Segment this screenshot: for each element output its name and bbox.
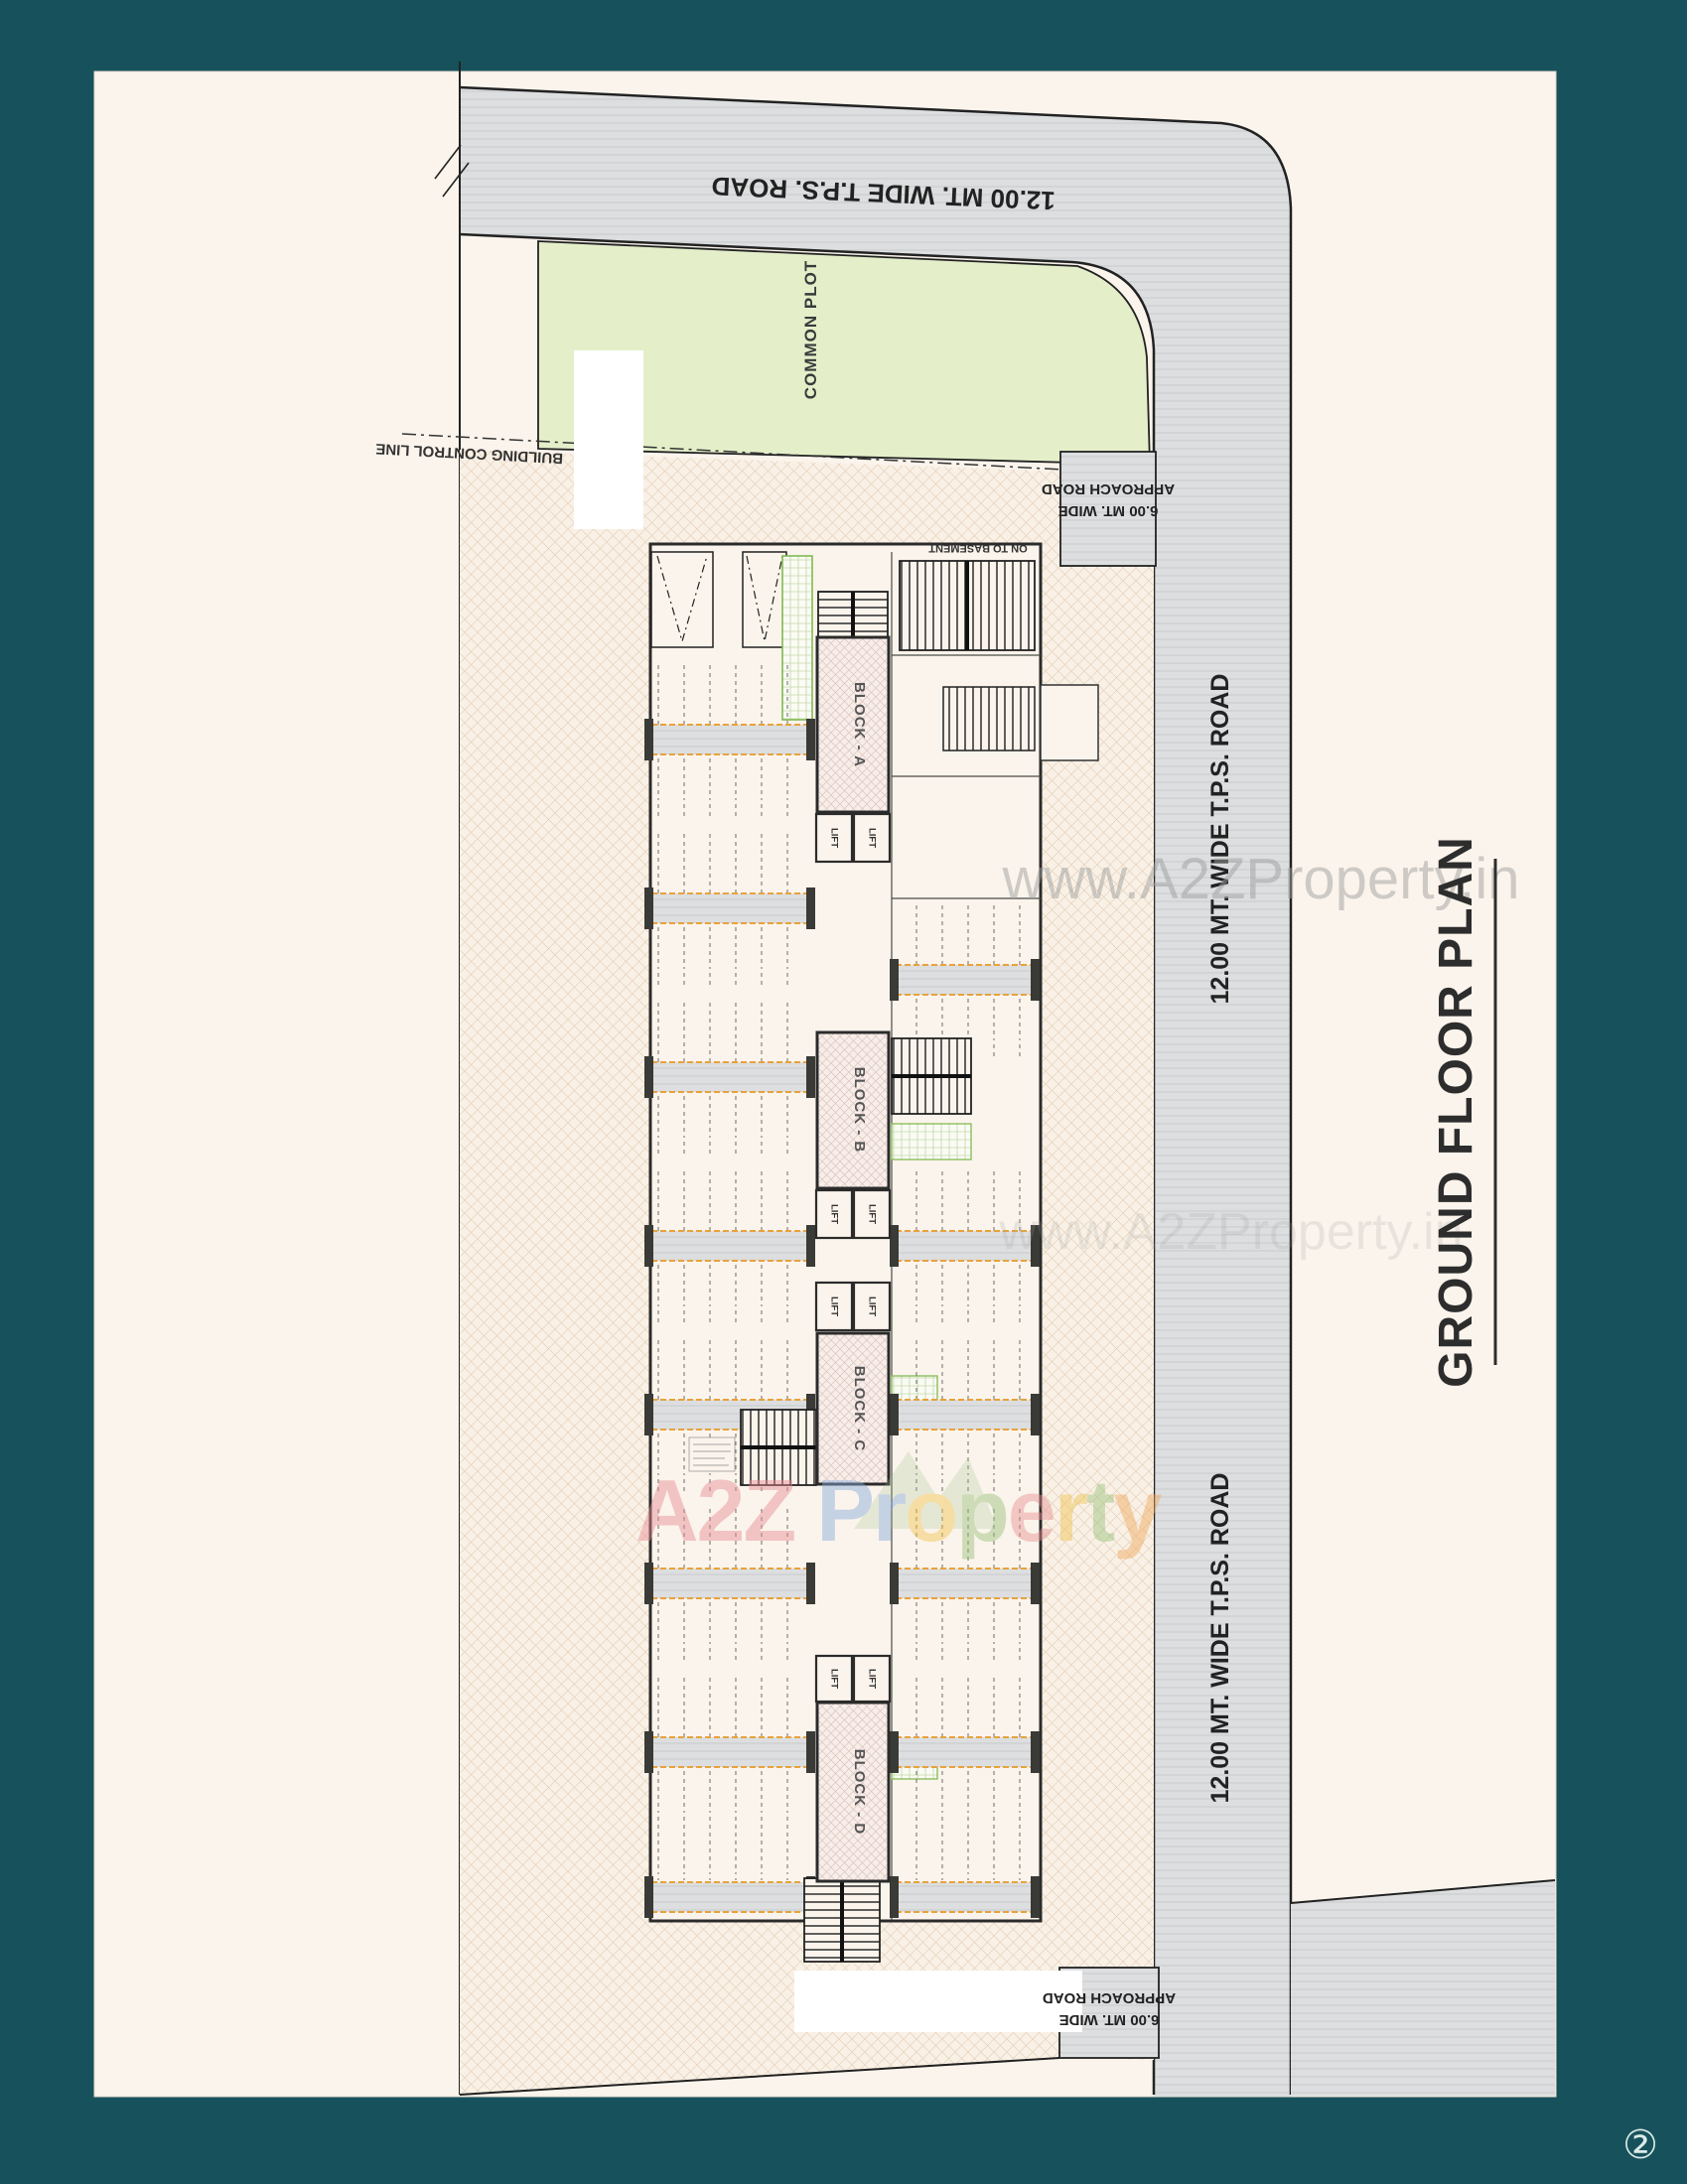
watermark-brand-text: A2ZProperty (635, 1461, 1162, 1560)
watermark-brand: A2ZProperty (635, 1451, 1162, 1560)
page-number-badge: ② (1622, 2123, 1658, 2167)
lift-label: LIFT (866, 1669, 877, 1689)
drawing-title-text: GROUND FLOOR PLAN (1430, 836, 1482, 1388)
lift-label: LIFT (828, 1297, 839, 1316)
tps-road-right-upper-label: 12.00 MT. WIDE T.P.S. ROAD (1206, 674, 1234, 1005)
lift-label: LIFT (828, 1669, 839, 1689)
green-grid-strip-b (892, 1124, 971, 1160)
lift-pair-block-a: LIFT LIFT (816, 814, 890, 862)
road-bottom-wedge (1291, 1880, 1555, 2096)
whiteout-patch-bottom (794, 1971, 1082, 2032)
lift-pair-block-d: LIFT LIFT (816, 1656, 890, 1702)
staircase-block-d (804, 1878, 880, 1962)
block-c-label: BLOCK - C (851, 1366, 868, 1452)
parking-rows-left (644, 663, 815, 1918)
whiteout-patch-top (574, 350, 643, 529)
block-b-label: BLOCK - B (851, 1067, 868, 1154)
on-to-basement-label: ON TO BASEMENT (928, 542, 1028, 554)
tps-road-right-lower-label: 12.00 MT. WIDE T.P.S. ROAD (1206, 1473, 1234, 1804)
lift-pair-block-c: LIFT LIFT (816, 1283, 890, 1330)
lift-pair-block-b: LIFT LIFT (816, 1190, 890, 1238)
common-plot-label: COMMON PLOT (801, 260, 820, 399)
floor-plan-canvas: LIFT LIFT LIFT LIFT LIFT LIFT LIFT LIFT … (0, 0, 1687, 2184)
lift-label: LIFT (828, 828, 839, 848)
plan-page: LIFT LIFT LIFT LIFT LIFT LIFT LIFT LIFT … (0, 0, 1687, 2184)
lift-label: LIFT (866, 1297, 877, 1316)
lift-label: LIFT (866, 828, 877, 848)
lift-label: LIFT (828, 1204, 839, 1224)
staircase-block-b (892, 1038, 971, 1114)
lift-label: LIFT (866, 1204, 877, 1224)
block-a-label: BLOCK - A (851, 682, 868, 767)
staircase-block-a (818, 592, 888, 643)
watermark-url-faint: www.A2ZProperty.in (998, 1203, 1463, 1261)
block-d-label: BLOCK - D (851, 1749, 868, 1836)
